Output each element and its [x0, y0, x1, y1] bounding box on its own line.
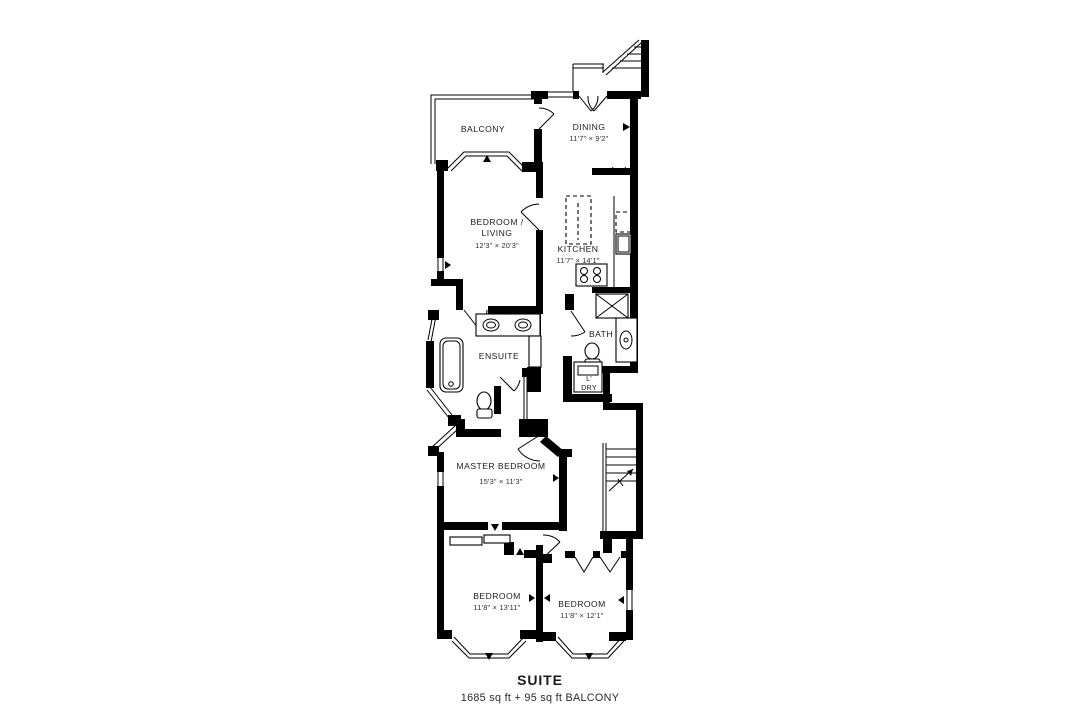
stove — [576, 264, 607, 286]
room-label-bedroom-living-1: BEDROOM / — [470, 217, 523, 227]
shaft — [596, 294, 628, 318]
room-label-bedroom3: BEDROOM — [558, 599, 606, 609]
double-vanity — [476, 314, 540, 336]
dishwasher — [616, 212, 631, 232]
floorplan-page: BALCONY DINING 11'7" × 9'2" BEDROOM / LI… — [0, 0, 1080, 720]
room-label-balcony: BALCONY — [461, 124, 505, 134]
kitchen-island — [566, 196, 591, 244]
linen-closet — [529, 336, 541, 367]
suite-area-text: 1685 sq ft + 95 sq ft BALCONY — [461, 692, 619, 704]
room-label-bedroom2: BEDROOM — [473, 591, 521, 601]
suite-title: SUITE — [517, 672, 563, 688]
room-dims-bedroom-living: 12'3" × 20'3" — [475, 241, 519, 250]
staircase-up-entry — [548, 40, 641, 97]
shower — [616, 318, 637, 362]
room-label-kitchen: KITCHEN — [558, 244, 599, 254]
room-label-laundry-1: L' — [586, 374, 592, 383]
master-closet-doors — [450, 535, 510, 545]
room-label-laundry-2: DRY — [581, 383, 597, 392]
room-label-bath: BATH — [589, 329, 613, 339]
footer: SUITE 1685 sq ft + 95 sq ft BALCONY — [461, 672, 619, 704]
room-label-dining: DINING — [573, 122, 606, 132]
room-dims-master: 15'3" × 11'3" — [479, 477, 522, 486]
bathtub — [440, 338, 463, 392]
room-dims-dining: 11'7" × 9'2" — [570, 134, 609, 143]
bay-windows — [427, 152, 632, 658]
staircase-down — [603, 443, 636, 531]
room-dims-bedroom3: 11'8" × 12'1" — [560, 611, 603, 620]
room-label-ensuite: ENSUITE — [479, 351, 519, 361]
room-label-master: MASTER BEDROOM — [457, 461, 546, 471]
room-label-bedroom-living-2: LIVING — [482, 228, 513, 238]
toilet-ensuite — [477, 392, 492, 418]
room-dims-bedroom2: 11'8" × 13'11" — [474, 603, 521, 612]
floorplan-drawing: BALCONY DINING 11'7" × 9'2" BEDROOM / LI… — [0, 0, 1080, 720]
room-dims-kitchen: 11'7" × 14'1" — [556, 256, 599, 265]
kitchen-counter — [614, 196, 631, 287]
